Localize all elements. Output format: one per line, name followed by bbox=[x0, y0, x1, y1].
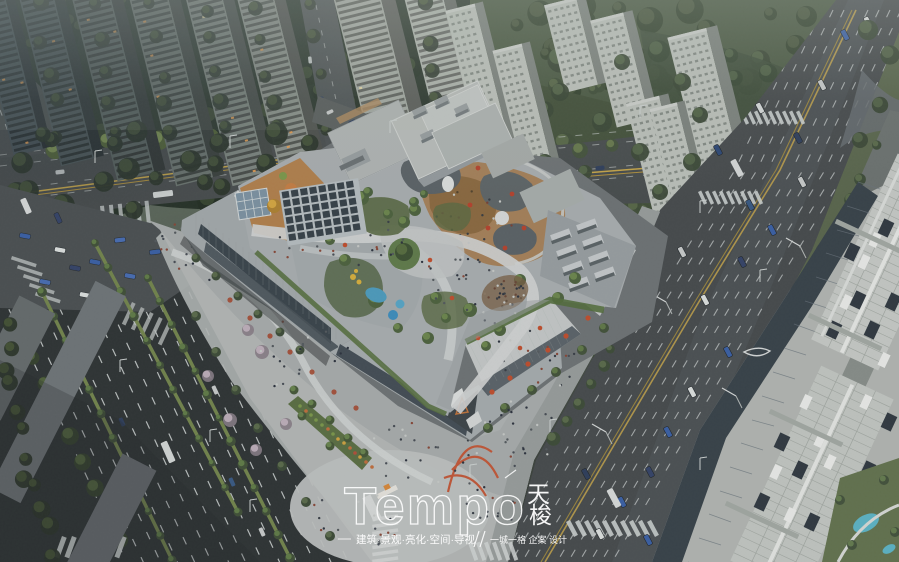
svg-text:梭: 梭 bbox=[529, 502, 552, 528]
svg-text:Tempo: Tempo bbox=[344, 477, 526, 536]
svg-text:建筑·景观·亮化·空间·导视: 建筑·景观·亮化·空间·导视 bbox=[356, 533, 475, 546]
svg-text:一城一格 企案 设计: 一城一格 企案 设计 bbox=[490, 534, 567, 545]
